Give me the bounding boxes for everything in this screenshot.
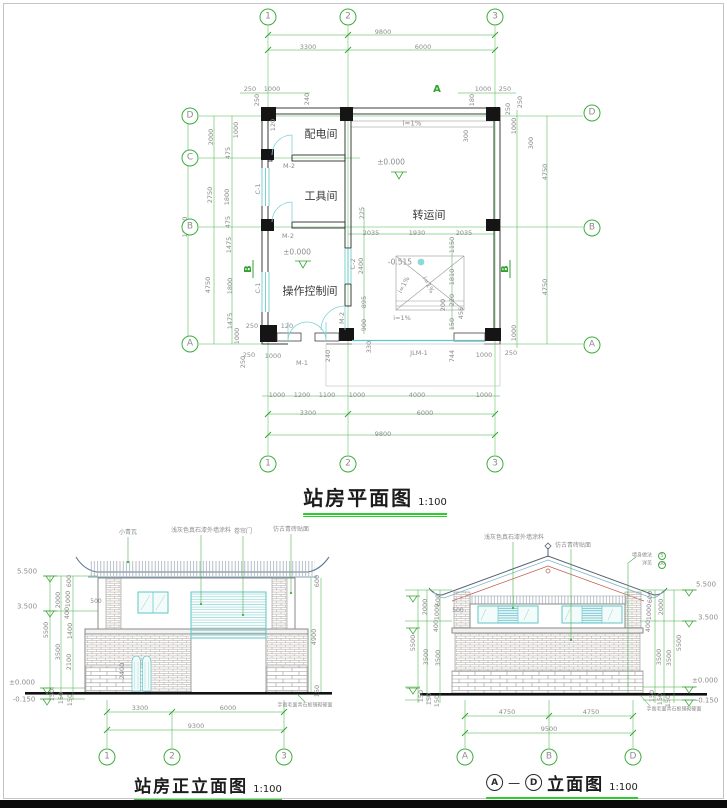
drawing-sheet: 98003300600025010001000250A2502401802501…	[0, 0, 727, 808]
dim-label: -0.150	[696, 698, 719, 705]
dim-label: 2035	[363, 230, 380, 237]
dim-label: 150	[665, 695, 672, 707]
dim-label: -0.150	[13, 697, 36, 704]
dim-label: 5.500	[696, 582, 716, 589]
dim-label: 250	[246, 323, 258, 330]
dim-label: 120	[281, 323, 293, 330]
dim-label: i=1%	[393, 315, 411, 322]
dim-label: 330	[366, 341, 373, 353]
dim-label: 5500	[676, 635, 683, 652]
dim-label: 2100	[66, 654, 73, 671]
dim-label: 6000	[417, 410, 434, 417]
dim-label: 5500	[43, 622, 50, 639]
dim-label: 手凿毛面青石板铺砌硬面	[277, 704, 332, 709]
dim-label: 300	[528, 137, 535, 149]
dim-label: ±0.000	[283, 248, 311, 256]
dim-label: 小青瓦	[119, 530, 137, 536]
dim-label: 4750	[542, 164, 549, 181]
grid-bubble-06: 06	[658, 561, 666, 569]
dim-label: M-2	[339, 312, 346, 324]
dim-label: ±0.000	[692, 678, 718, 685]
dim-label: 3.500	[698, 615, 718, 622]
grid-bubble-3: 3	[487, 9, 504, 26]
dim-label: 卷帘门	[234, 529, 252, 535]
dim-label: 浅灰色真石漆外墙涂料	[171, 528, 231, 534]
dim-label: 1000	[233, 122, 240, 139]
dim-label: 墙身做法	[632, 554, 652, 559]
dim-label: 1000	[265, 353, 282, 360]
dim-label: 895	[361, 296, 368, 308]
dim-label: 1000	[434, 604, 441, 621]
dim-label: 3500	[423, 649, 430, 666]
grid-bubble-D: D	[584, 105, 601, 122]
dim-label: 400	[645, 620, 652, 632]
dim-label: 1150	[449, 237, 456, 254]
dim-label: 600	[314, 575, 321, 587]
dim-label: 1000	[511, 325, 518, 342]
grid-bubble-3: 3	[487, 456, 504, 473]
dim-label: 1475	[226, 237, 233, 254]
dim-label: C-1	[255, 282, 262, 293]
grid-bubble-2: 2	[340, 456, 357, 473]
dim-label: 仿古青砖贴面	[555, 543, 591, 549]
grid-bubble-C: C	[182, 150, 199, 167]
dim-label: 4750	[542, 279, 549, 296]
dim-label: 4750	[583, 709, 600, 716]
plan-columns	[260, 107, 501, 342]
dim-label: 2400	[358, 258, 365, 275]
dim-label: 250	[499, 86, 511, 93]
grid-bubble-A: A	[457, 749, 474, 766]
dim-label: 4900	[311, 629, 318, 646]
dim-label: 2750	[207, 187, 214, 204]
dim-label: 150	[657, 693, 664, 705]
front-title-text: 站房正立面图	[134, 772, 248, 797]
dim-label: 200	[440, 299, 447, 311]
dim-label: 手凿毛面青石板铺砌硬面	[646, 708, 701, 713]
grid-bubble-3: 3	[276, 749, 293, 766]
dim-label: 3500	[666, 650, 673, 667]
dim-label: 1000	[475, 86, 492, 93]
dim-label: ±0.000	[377, 158, 405, 166]
ad-title-bubble-a: A	[486, 774, 503, 791]
dim-label: 1000	[264, 86, 281, 93]
dim-label: 5.500	[17, 569, 37, 576]
dim-label: 6000	[220, 705, 237, 712]
dim-label: 配电间	[305, 129, 338, 140]
dim-label: 150	[58, 692, 65, 704]
dim-label: 400	[64, 607, 71, 619]
dim-label: 工具间	[305, 191, 338, 202]
grid-bubble-B: B	[182, 219, 199, 236]
grid-bubble-2: 2	[164, 749, 181, 766]
grid-bubble-B: B	[584, 220, 601, 237]
dim-label: 5500	[410, 635, 417, 652]
dim-label: 操作控制间	[283, 286, 338, 297]
front-elevation-geometry	[25, 534, 332, 705]
plan-title-scale: 1:100	[418, 497, 447, 508]
dim-label: 9500	[541, 726, 558, 733]
section-marks	[253, 260, 510, 278]
dim-label: 2000	[55, 592, 62, 609]
bottom-bar	[0, 800, 727, 808]
dim-label: 1800	[227, 278, 234, 295]
ad-roof-outer	[429, 556, 667, 595]
dim-label: 1100	[319, 392, 336, 399]
dim-label: 150	[649, 690, 656, 702]
dim-label: 1000	[646, 604, 653, 621]
ad-title-text: 立面图	[547, 770, 604, 795]
dim-label: 仿古青砖贴面	[273, 527, 309, 533]
dim-label: 9300	[188, 723, 205, 730]
dim-label: ±0.000	[9, 680, 35, 687]
dim-label: 150	[418, 690, 425, 702]
dim-label: 2000	[208, 129, 215, 146]
ad-brick-wall	[455, 633, 640, 671]
dim-label: 3300	[300, 410, 317, 417]
dim-label: 180	[469, 94, 476, 106]
dim-label: JLM-1	[410, 350, 428, 357]
grid-bubble-1: 1	[260, 9, 277, 26]
dim-label: 1000	[476, 392, 493, 399]
dim-label: 250	[254, 94, 261, 106]
ad-title-scale: 1:100	[609, 782, 638, 793]
dim-label: 250	[243, 352, 255, 359]
dim-label: C-2	[350, 258, 357, 269]
ad-stone-base	[452, 671, 643, 693]
front-title-scale: 1:100	[253, 784, 282, 795]
dim-label: 2000	[422, 599, 429, 616]
dim-label: 250	[505, 103, 512, 115]
plan-title-text: 站房平面图	[303, 482, 413, 511]
dim-label: 600	[647, 591, 654, 603]
dim-label: 240	[304, 93, 311, 105]
dim-label: 475	[225, 216, 232, 228]
front-shutter-door	[191, 592, 266, 638]
ad-window-1	[478, 606, 538, 623]
dim-label: 3.500	[17, 604, 37, 611]
dim-label: 150	[449, 318, 456, 330]
plan-title: 站房平面图 1:100	[303, 482, 447, 517]
dim-label: 1000	[511, 118, 518, 135]
dim-label: 1400	[67, 623, 74, 640]
dim-label: 475	[225, 147, 232, 159]
dim-label: 1930	[409, 230, 426, 237]
dim-label: M-1	[296, 360, 308, 367]
dim-label: 150	[434, 695, 441, 707]
dim-label: 225	[359, 207, 366, 219]
dim-label: B	[244, 265, 254, 273]
grid-bubble-1: 1	[260, 456, 277, 473]
plan-title-underline	[303, 513, 447, 517]
dim-label: 1800	[224, 189, 231, 206]
dim-label: 300	[463, 130, 470, 142]
dim-label: 150	[426, 693, 433, 705]
dim-label: 120	[270, 119, 277, 131]
dim-label: 400	[433, 620, 440, 632]
grid-bubble-B: B	[541, 749, 558, 766]
dim-label: 6000	[415, 44, 432, 51]
dim-label: 150	[49, 689, 56, 701]
dim-label: M-2	[283, 163, 295, 170]
dim-label: 250	[244, 86, 256, 93]
dim-label: 1810	[449, 269, 456, 286]
front-roof-tiles	[90, 561, 315, 576]
dim-label: 150	[67, 694, 74, 706]
grid-bubble-2: 2	[340, 9, 357, 26]
dim-label: 1000	[269, 392, 286, 399]
dim-label: 1000	[349, 392, 366, 399]
dim-label: 浅灰色真石漆外墙涂料	[484, 535, 544, 541]
dim-label: 9800	[375, 431, 392, 438]
dim-label: 220	[449, 294, 456, 306]
cad-geometry	[0, 0, 727, 808]
dim-label: -0.515	[388, 258, 412, 266]
dim-label: 240	[325, 350, 332, 362]
grid-bubble-1: 1	[99, 749, 116, 766]
dim-label: 详见	[642, 562, 652, 567]
dim-label: 1000	[65, 591, 72, 608]
dim-label: 900	[361, 319, 368, 331]
dim-label: 3500	[55, 644, 62, 661]
dim-label: 744	[449, 350, 456, 362]
dim-label: 250	[517, 96, 524, 108]
dim-label: 转运间	[413, 210, 446, 221]
dim-label: i=1%	[403, 121, 422, 128]
dim-label: 600	[66, 575, 73, 587]
dim-label: 9800	[375, 29, 392, 36]
grid-bubble-A: A	[584, 337, 601, 354]
dim-label: 456	[458, 307, 465, 319]
front-elevation-title: 站房正立面图 1:100	[134, 772, 282, 803]
dim-label: 4000	[409, 392, 426, 399]
dim-label: B	[501, 265, 511, 273]
ad-tile-band	[470, 596, 626, 604]
dim-label: 2035	[456, 230, 473, 237]
ad-cornice	[452, 628, 643, 633]
dim-label: 500	[90, 599, 101, 605]
dim-label: 2000	[658, 599, 665, 616]
drain-circle	[418, 259, 425, 266]
dim-label: 500	[452, 608, 463, 614]
grid-bubble-D: D	[182, 108, 199, 125]
dim-label: 4750	[205, 277, 212, 294]
dim-label: 3500	[656, 649, 663, 666]
grid-bubble-A: A	[182, 336, 199, 353]
dim-label: C-1	[255, 183, 262, 194]
dim-label: 3300	[132, 705, 149, 712]
grid-bubble-5: 5	[658, 552, 666, 560]
dim-label: 250	[505, 350, 517, 357]
dim-label: 3300	[300, 44, 317, 51]
dim-label: 3500	[435, 650, 442, 667]
dim-label: 1000	[476, 352, 493, 359]
dim-label: 1000	[234, 328, 241, 345]
dim-label: M-2	[282, 233, 294, 240]
ad-elevation-title: A — D 立面图 1:100	[486, 770, 638, 801]
dim-label: 1200	[294, 392, 311, 399]
ad-title-bubble-d: D	[525, 774, 542, 791]
ad-title-dash: —	[508, 776, 520, 790]
grid-bubble-D: D	[625, 749, 642, 766]
dim-label: 150	[314, 685, 321, 697]
dim-label: 4750	[499, 709, 516, 716]
dim-label: 2400	[119, 663, 126, 680]
dim-label: A	[433, 85, 441, 95]
